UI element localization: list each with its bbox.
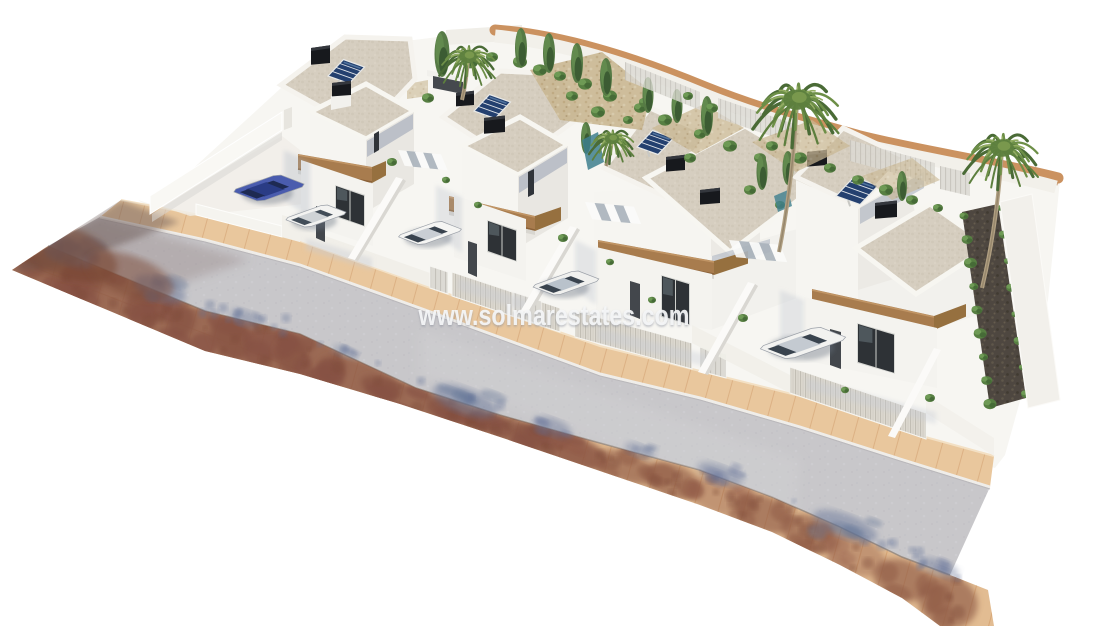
svg-text:www.solmarestates.com: www.solmarestates.com [418, 300, 690, 332]
